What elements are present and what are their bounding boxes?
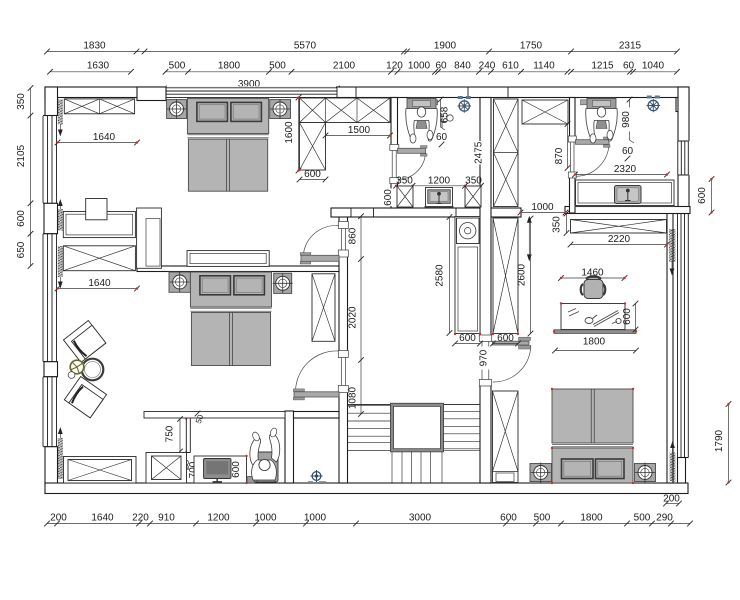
svg-text:350: 350 [396,175,413,186]
svg-text:2100: 2100 [333,61,356,72]
svg-text:1640: 1640 [88,278,111,289]
svg-text:2315: 2315 [619,41,642,52]
svg-text:1750: 1750 [520,41,543,52]
svg-text:1000: 1000 [304,513,327,524]
svg-text:600: 600 [383,189,394,206]
svg-text:2600: 2600 [517,263,528,286]
svg-text:350: 350 [16,93,27,110]
svg-text:600: 600 [500,513,517,524]
svg-text:240: 240 [479,61,496,72]
svg-text:2105: 2105 [16,144,27,167]
svg-text:60: 60 [435,61,447,72]
svg-text:200: 200 [663,494,680,505]
svg-text:1640: 1640 [93,132,116,143]
svg-text:1640: 1640 [91,513,114,524]
svg-text:1600: 1600 [284,121,295,144]
svg-text:1460: 1460 [581,268,604,279]
svg-text:2580: 2580 [435,264,446,287]
svg-text:500: 500 [269,61,286,72]
svg-text:1500: 1500 [348,125,371,136]
svg-text:200: 200 [50,513,67,524]
svg-text:980: 980 [621,111,632,128]
svg-text:350: 350 [552,216,563,233]
svg-text:1790: 1790 [714,429,725,452]
svg-text:1000: 1000 [531,202,554,213]
svg-text:600: 600 [231,461,242,478]
svg-text:220: 220 [132,513,149,524]
svg-text:120: 120 [386,61,403,72]
svg-text:910: 910 [158,513,175,524]
svg-text:60: 60 [623,61,635,72]
svg-text:600: 600 [622,308,633,325]
svg-text:60: 60 [622,146,634,157]
svg-text:1800: 1800 [580,513,603,524]
svg-text:290: 290 [656,513,673,524]
svg-text:2220: 2220 [608,234,631,245]
svg-text:500: 500 [534,513,551,524]
svg-text:1040: 1040 [642,61,665,72]
svg-text:1900: 1900 [434,41,457,52]
svg-text:1140: 1140 [533,61,555,72]
svg-text:600: 600 [459,333,476,344]
svg-text:500: 500 [169,61,186,72]
svg-text:60: 60 [436,132,448,143]
svg-text:500: 500 [634,513,651,524]
svg-text:860: 860 [348,227,359,244]
svg-text:1830: 1830 [83,41,106,52]
svg-text:840: 840 [454,61,471,72]
svg-text:350: 350 [465,175,482,186]
svg-text:610: 610 [502,61,519,72]
svg-text:1630: 1630 [87,61,110,72]
svg-text:1800: 1800 [583,337,606,348]
svg-text:1000: 1000 [254,513,277,524]
svg-text:5570: 5570 [294,41,317,52]
svg-text:1080: 1080 [348,386,359,409]
svg-text:870: 870 [554,147,565,164]
svg-text:600: 600 [497,333,514,344]
svg-text:1800: 1800 [218,61,241,72]
svg-text:750: 750 [165,425,176,442]
svg-text:600: 600 [304,169,321,180]
svg-text:1215: 1215 [591,61,614,72]
svg-text:2020: 2020 [348,306,359,329]
svg-text:3000: 3000 [409,513,432,524]
svg-text:2475: 2475 [474,141,485,164]
svg-text:1200: 1200 [428,175,451,186]
svg-text:1200: 1200 [207,513,230,524]
svg-text:600: 600 [16,210,27,227]
svg-text:1000: 1000 [408,61,431,72]
svg-text:970: 970 [478,349,489,366]
svg-text:2320: 2320 [614,164,637,175]
svg-text:600: 600 [697,187,708,204]
svg-text:650: 650 [16,241,27,258]
